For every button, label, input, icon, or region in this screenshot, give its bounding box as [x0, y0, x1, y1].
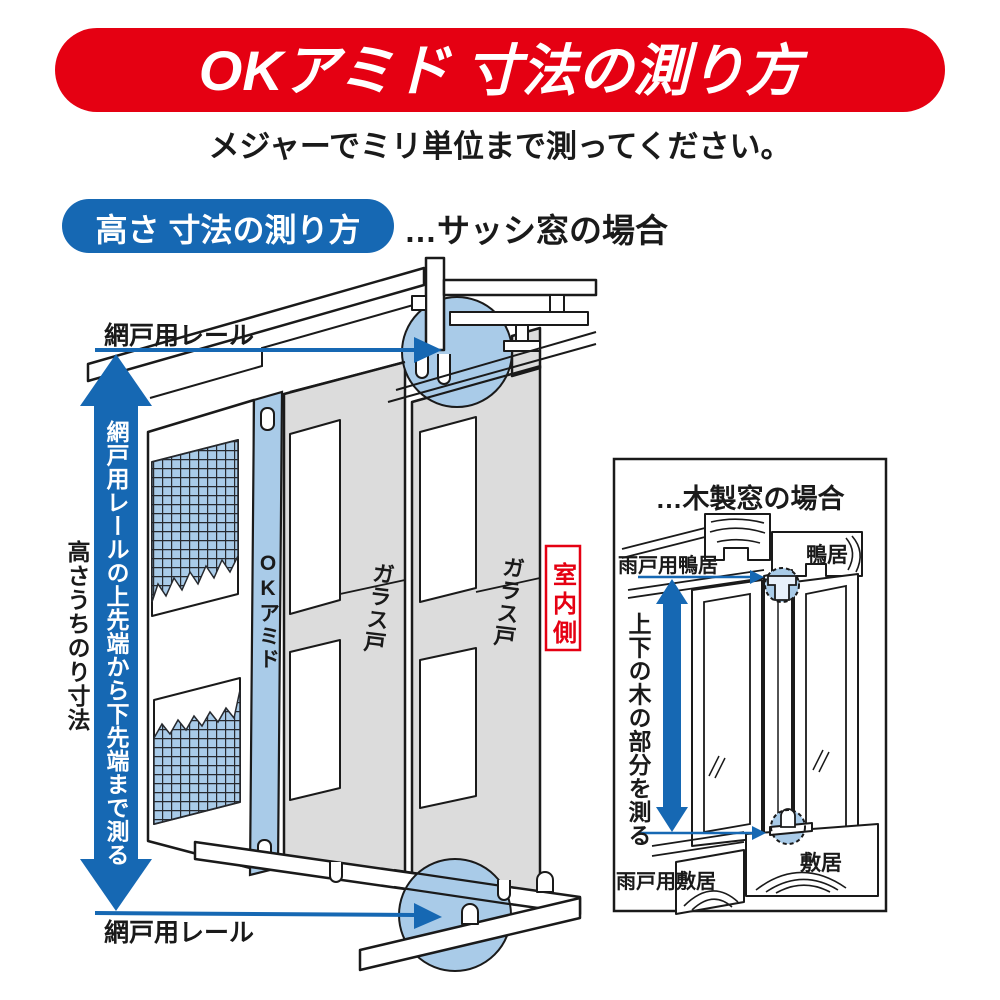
glass-1-opening-bottom: [290, 640, 340, 800]
frame-post: [426, 258, 444, 350]
section-badge-label: 高さ 寸法の測り方: [96, 212, 361, 248]
okamido-label: OKアミド: [257, 552, 280, 671]
top-track-bar-2: [450, 312, 588, 325]
main-diagram: 網戸用レールの上先端から下先端まで測る 網戸用レール 網戸用レール 高さうちのり…: [64, 258, 596, 971]
glass-2-opening-bottom: [420, 648, 476, 808]
section-header: 高さ 寸法の測り方 …サッシ窓の場合: [62, 199, 668, 253]
strip-hook-top: [261, 408, 274, 430]
indoor-label: 室内側: [549, 561, 578, 649]
glass-2-opening-top: [420, 417, 476, 602]
bottom-rail-label: 網戸用レール: [104, 918, 254, 947]
glass-1-opening-top: [290, 420, 340, 614]
inset-arrow-shaft: [663, 602, 681, 808]
inset-wooden-window: …木製窓の場合: [614, 459, 886, 914]
bottom-rail-dimension-line: [95, 913, 414, 915]
inset-title: …木製窓の場合: [656, 483, 845, 514]
measurement-guide-page: OKアミド 寸法の測り方 メジャーでミリ単位まで測ってください。 高さ 寸法の測…: [0, 0, 1000, 1000]
bottom-hook-1: [330, 862, 342, 882]
bottom-hook-2: [498, 880, 510, 900]
subtitle: メジャーでミリ単位まで測ってください。: [208, 129, 791, 164]
inset-top-rail-detail: [765, 568, 799, 602]
shikii-label: 敷居: [800, 851, 842, 875]
inset-arrow-text: 上下の木の部分を測る: [625, 612, 653, 847]
diagram-svg: OKアミド 寸法の測り方 メジャーでミリ単位まで測ってください。 高さ 寸法の測…: [0, 0, 1000, 1000]
rail-cap-1: [537, 872, 553, 892]
frame-post-flange: [412, 296, 426, 310]
height-arrow-bottom-head: [80, 859, 152, 911]
title-banner: OKアミド 寸法の測り方: [55, 28, 945, 112]
section-case-label: …サッシ窓の場合: [404, 212, 668, 249]
wood-sash-front-glass: [806, 586, 846, 840]
rail-hook-2: [438, 354, 450, 384]
height-arrow-text: 網戸用レールの上先端から下先端まで測る: [103, 419, 130, 866]
wood-sash-back-glass: [704, 594, 750, 832]
top-rail-label: 網戸用レール: [104, 321, 254, 350]
kamoi-label: 鴨居: [806, 543, 848, 567]
storm-shikii-label: 雨戸用敷居: [616, 869, 716, 893]
rail-cap-2: [462, 904, 478, 924]
banner-title: OKアミド 寸法の測り方: [199, 39, 808, 102]
top-track-bar: [444, 280, 596, 295]
indoor-side-box: 室内側: [546, 546, 580, 650]
inner-height-label: 高さうちのり寸法: [64, 539, 91, 732]
storm-kamoi-label: 雨戸用鴨居: [618, 553, 718, 577]
